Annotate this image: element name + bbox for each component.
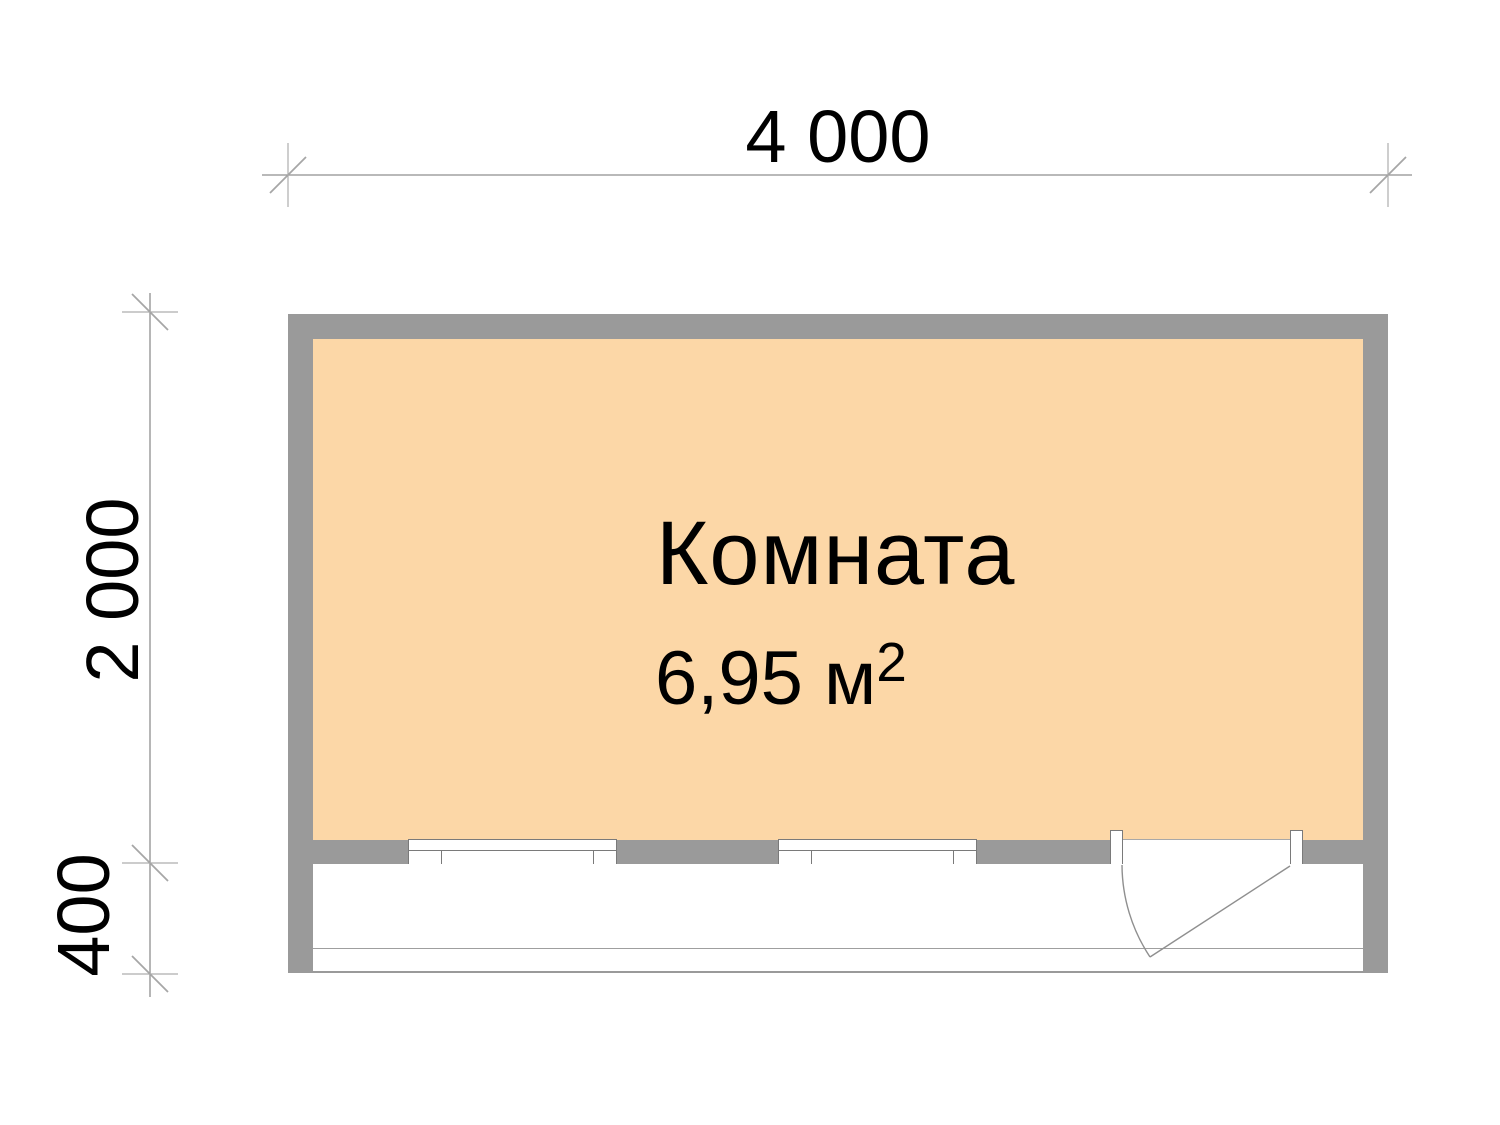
window-1-frame-tick-right: [593, 850, 594, 864]
depth-dimension-label: 400: [47, 715, 121, 1115]
left-tick-top: [132, 294, 168, 330]
window-2: [778, 839, 977, 865]
window-1: [408, 839, 617, 865]
left-tick-middle: [132, 845, 168, 881]
door-jamb-right: [1290, 830, 1303, 865]
width-dimension-label: 4 000: [638, 100, 1038, 174]
top-tick-right: [1370, 157, 1406, 193]
room-area-superscript: 2: [876, 631, 907, 693]
room-area-value: 6,95 м: [655, 636, 876, 721]
window-2-frame-tick-right: [953, 850, 954, 864]
top-tick-left: [270, 157, 306, 193]
veranda-floor: [313, 864, 1363, 972]
veranda-wall-left: [288, 864, 313, 973]
door-opening: [1123, 839, 1290, 866]
veranda-wall-right: [1363, 864, 1388, 973]
room-area-label: 6,95 м2: [655, 641, 907, 717]
window-2-frame-tick-left: [811, 850, 812, 864]
floor-plan-canvas: Комната 6,95 м2: [0, 0, 1500, 1125]
door-jamb-left: [1110, 830, 1123, 865]
left-tick-bottom: [132, 956, 168, 992]
room-name-label: Комната: [656, 509, 1015, 599]
veranda-edge-line: [288, 971, 1388, 973]
window-1-frame-tick-left: [441, 850, 442, 864]
window-2-glass-line: [779, 850, 976, 851]
veranda-step-line: [313, 948, 1363, 949]
